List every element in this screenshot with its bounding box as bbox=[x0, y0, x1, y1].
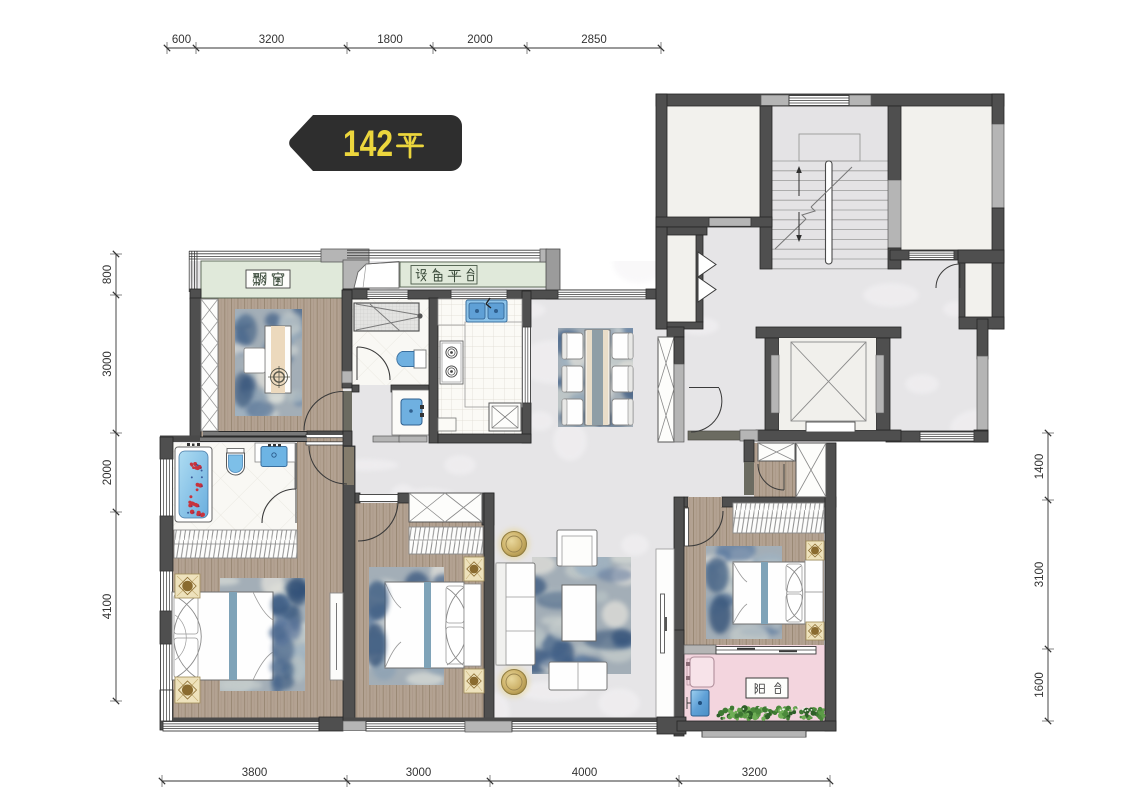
svg-text:1400: 1400 bbox=[1034, 454, 1046, 480]
svg-text:3200: 3200 bbox=[742, 767, 768, 779]
svg-text:1800: 1800 bbox=[377, 34, 403, 46]
svg-text:2000: 2000 bbox=[467, 34, 493, 46]
svg-text:3800: 3800 bbox=[242, 767, 268, 779]
svg-text:3000: 3000 bbox=[102, 351, 114, 377]
svg-text:2850: 2850 bbox=[581, 34, 607, 46]
svg-text:600: 600 bbox=[172, 34, 191, 46]
svg-text:1600: 1600 bbox=[1034, 672, 1046, 698]
svg-text:142: 142 bbox=[343, 123, 393, 164]
svg-text:2000: 2000 bbox=[102, 460, 114, 486]
svg-text:3200: 3200 bbox=[259, 34, 285, 46]
svg-text:800: 800 bbox=[102, 265, 114, 284]
svg-text:3000: 3000 bbox=[406, 767, 432, 779]
svg-text:4000: 4000 bbox=[572, 767, 598, 779]
svg-text:3100: 3100 bbox=[1034, 562, 1046, 588]
svg-text:4100: 4100 bbox=[102, 594, 114, 620]
